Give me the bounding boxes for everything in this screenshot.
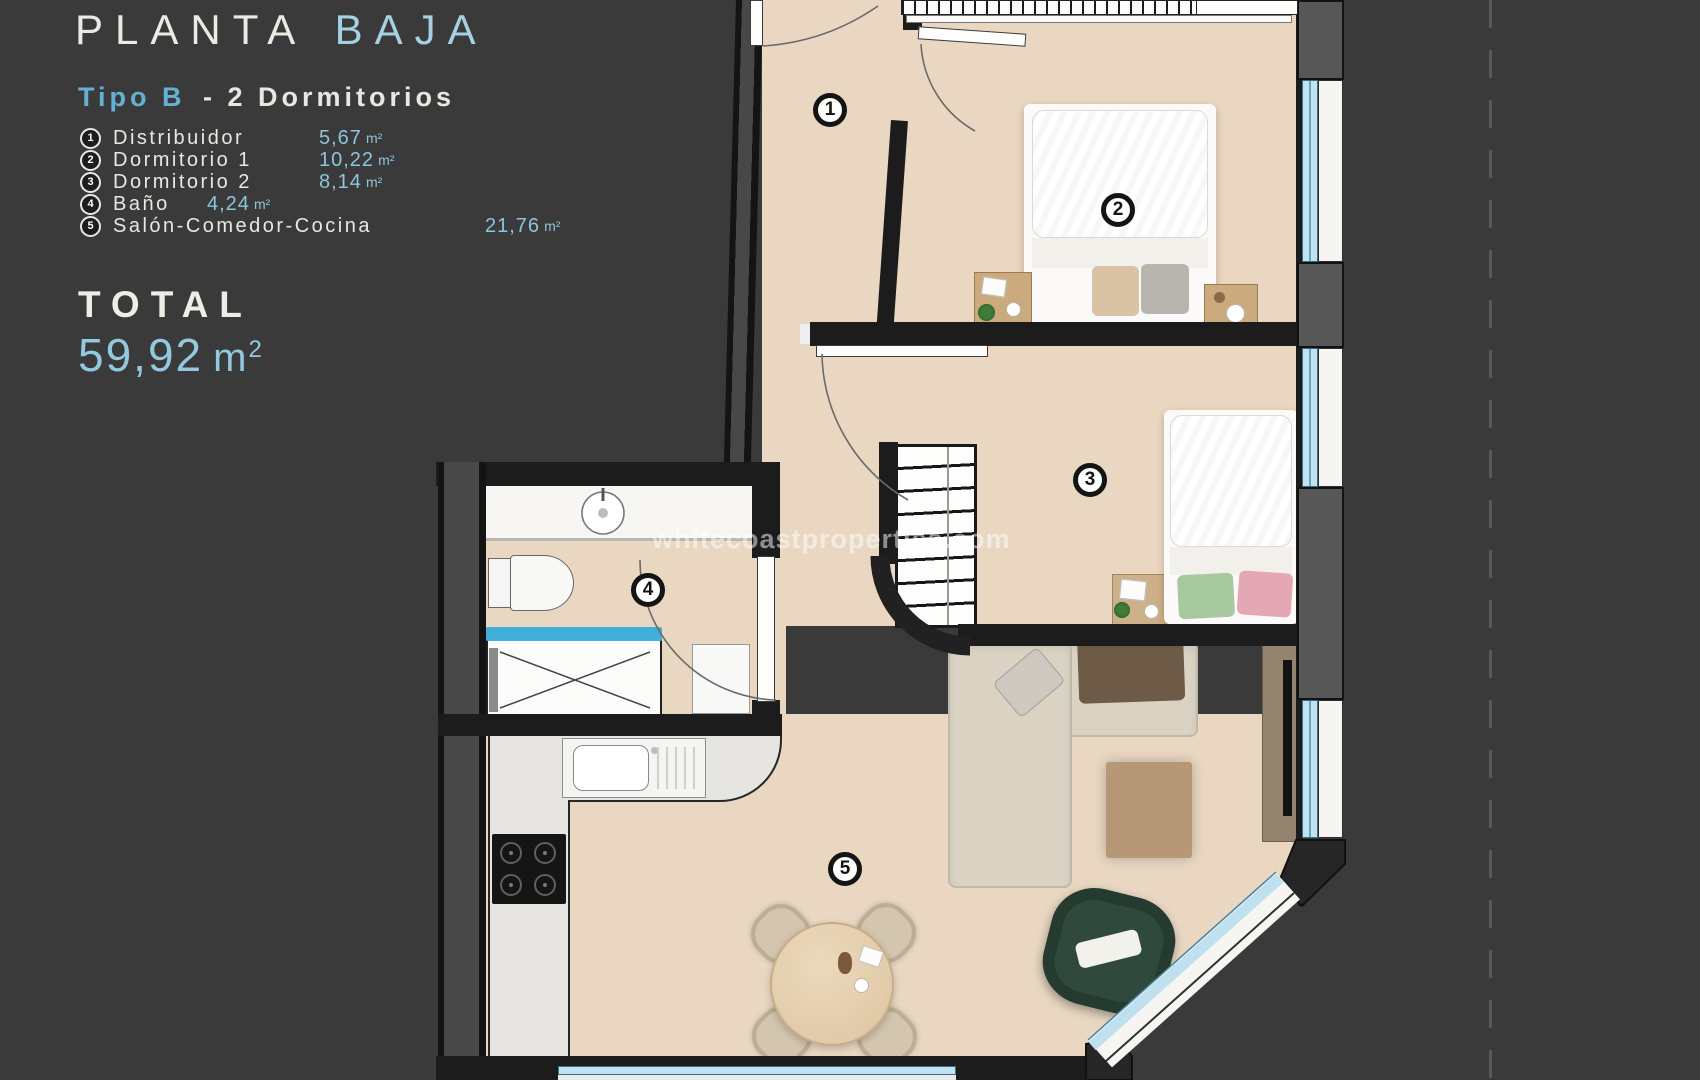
legend-item-salon-comedor-cocina: 5 Salón-Comedor-Cocina 21,76 m² (80, 215, 560, 237)
legend-room-unit: m² (366, 171, 382, 193)
legend-number-badge: 4 (80, 194, 101, 215)
subtitle-accent: Tipo B (78, 82, 186, 112)
coffee-cup-icon (1226, 304, 1245, 323)
small-bowl-icon (1214, 292, 1225, 303)
boundary-dashed-line (1489, 0, 1492, 1080)
bench-clock (1144, 604, 1159, 619)
wall-bedrooms-divider (810, 322, 1298, 346)
door-jamb-white (800, 324, 810, 344)
nightstand-book (981, 276, 1007, 297)
bathroom-door-leaf (757, 556, 775, 702)
legend-item-bano: 4 Baño 4,24 m² (80, 193, 560, 215)
tv-screen (1283, 660, 1292, 816)
window-glazing-bedroom2 (1302, 348, 1318, 487)
legend-room-name: Distribuidor (113, 127, 319, 149)
single-bed-sheet (1170, 547, 1292, 575)
legend-item-dormitorio-1: 2 Dormitorio 1 10,22 m² (80, 149, 560, 171)
wall-pier (1297, 262, 1344, 348)
wall-living-top (958, 624, 1298, 646)
legend-number-badge: 5 (80, 216, 101, 237)
room-badge-salon: 5 (828, 852, 862, 886)
gray-blanket (1141, 264, 1189, 314)
single-bed-duvet (1170, 415, 1292, 547)
entry-cabinet (1196, 0, 1298, 15)
legend-number-badge: 1 (80, 128, 101, 149)
title-main: PLANTA (75, 6, 305, 53)
legend-room-area: 4,24 (207, 193, 250, 215)
legend-number-badge: 3 (80, 172, 101, 193)
wall-pier (1297, 0, 1344, 80)
total-number: 59,92 (78, 329, 203, 381)
window-glazing-living (1302, 700, 1318, 838)
legend-room-area: 8,14 (319, 171, 362, 193)
bench-notepad (1119, 579, 1147, 602)
info-panel: PLANTA BAJA Tipo B - 2 Dormitorios 1 Dis… (0, 0, 660, 1080)
beige-blanket (1092, 266, 1139, 316)
floorplan-page: PLANTA BAJA Tipo B - 2 Dormitorios 1 Dis… (0, 0, 1700, 1080)
subtitle-rest: - 2 Dormitorios (203, 82, 455, 112)
legend-room-name: Dormitorio 1 (113, 149, 319, 171)
legend-number-badge: 2 (80, 150, 101, 171)
watermark: whitecoastproperties.com (652, 524, 1011, 555)
legend-room-unit: m² (544, 215, 560, 237)
bedroom2-door-leaf (816, 345, 988, 357)
bathroom-cabinet (692, 644, 750, 714)
legend-room-name: Salón-Comedor-Cocina (113, 215, 485, 237)
room-badge-dormitorio2: 3 (1073, 463, 1107, 497)
window-sill-living (1318, 700, 1343, 838)
table-decor (838, 952, 852, 974)
legend-room-area: 21,76 (485, 215, 540, 237)
kitchen-drainer (657, 747, 701, 789)
legend-room-unit: m² (378, 149, 394, 171)
wall-pier (1297, 487, 1344, 700)
legend-room-unit: m² (366, 127, 382, 149)
room-badge-dormitorio1: 2 (1101, 193, 1135, 227)
entrance-door-leaf (750, 0, 763, 46)
page-title: PLANTA BAJA (75, 6, 488, 54)
total-label: TOTAL (78, 284, 253, 326)
room-legend: 1 Distribuidor 5,67 m² 2 Dormitorio 1 10… (80, 127, 560, 237)
rug (1106, 762, 1192, 858)
legend-room-area: 10,22 (319, 149, 374, 171)
total-unit: m2 (213, 336, 264, 380)
window-sill-bedroom1 (1318, 80, 1343, 262)
window-sill-bedroom2 (1318, 348, 1343, 487)
legend-room-unit: m² (254, 193, 270, 215)
total-area-value: 59,92m2 (78, 328, 264, 382)
wardrobe-front-sill (906, 15, 1292, 23)
legend-room-area: 5,67 (319, 127, 362, 149)
entry-wardrobe-hangers (901, 0, 1197, 15)
legend-item-distribuidor: 1 Distribuidor 5,67 m² (80, 127, 560, 149)
legend-room-name: Dormitorio 2 (113, 171, 319, 193)
wall-exterior-left (724, 0, 763, 471)
room-badge-distribuidor: 1 (813, 93, 847, 127)
title-accent: BAJA (335, 6, 488, 53)
legend-room-name: Baño (113, 193, 207, 215)
pink-pillow (1237, 570, 1294, 618)
nightstand-clock (1006, 302, 1021, 317)
wall-bathroom-right-lower (752, 700, 780, 736)
plan-type-subtitle: Tipo B - 2 Dormitorios (78, 82, 455, 113)
plant-icon (978, 304, 995, 321)
plant-icon (1114, 602, 1130, 618)
dining-table (770, 922, 894, 1046)
green-pillow (1177, 573, 1235, 620)
legend-item-dormitorio-2: 3 Dormitorio 2 8,14 m² (80, 171, 560, 193)
window-glazing-bedroom1 (1302, 80, 1318, 262)
table-cup (854, 978, 869, 993)
